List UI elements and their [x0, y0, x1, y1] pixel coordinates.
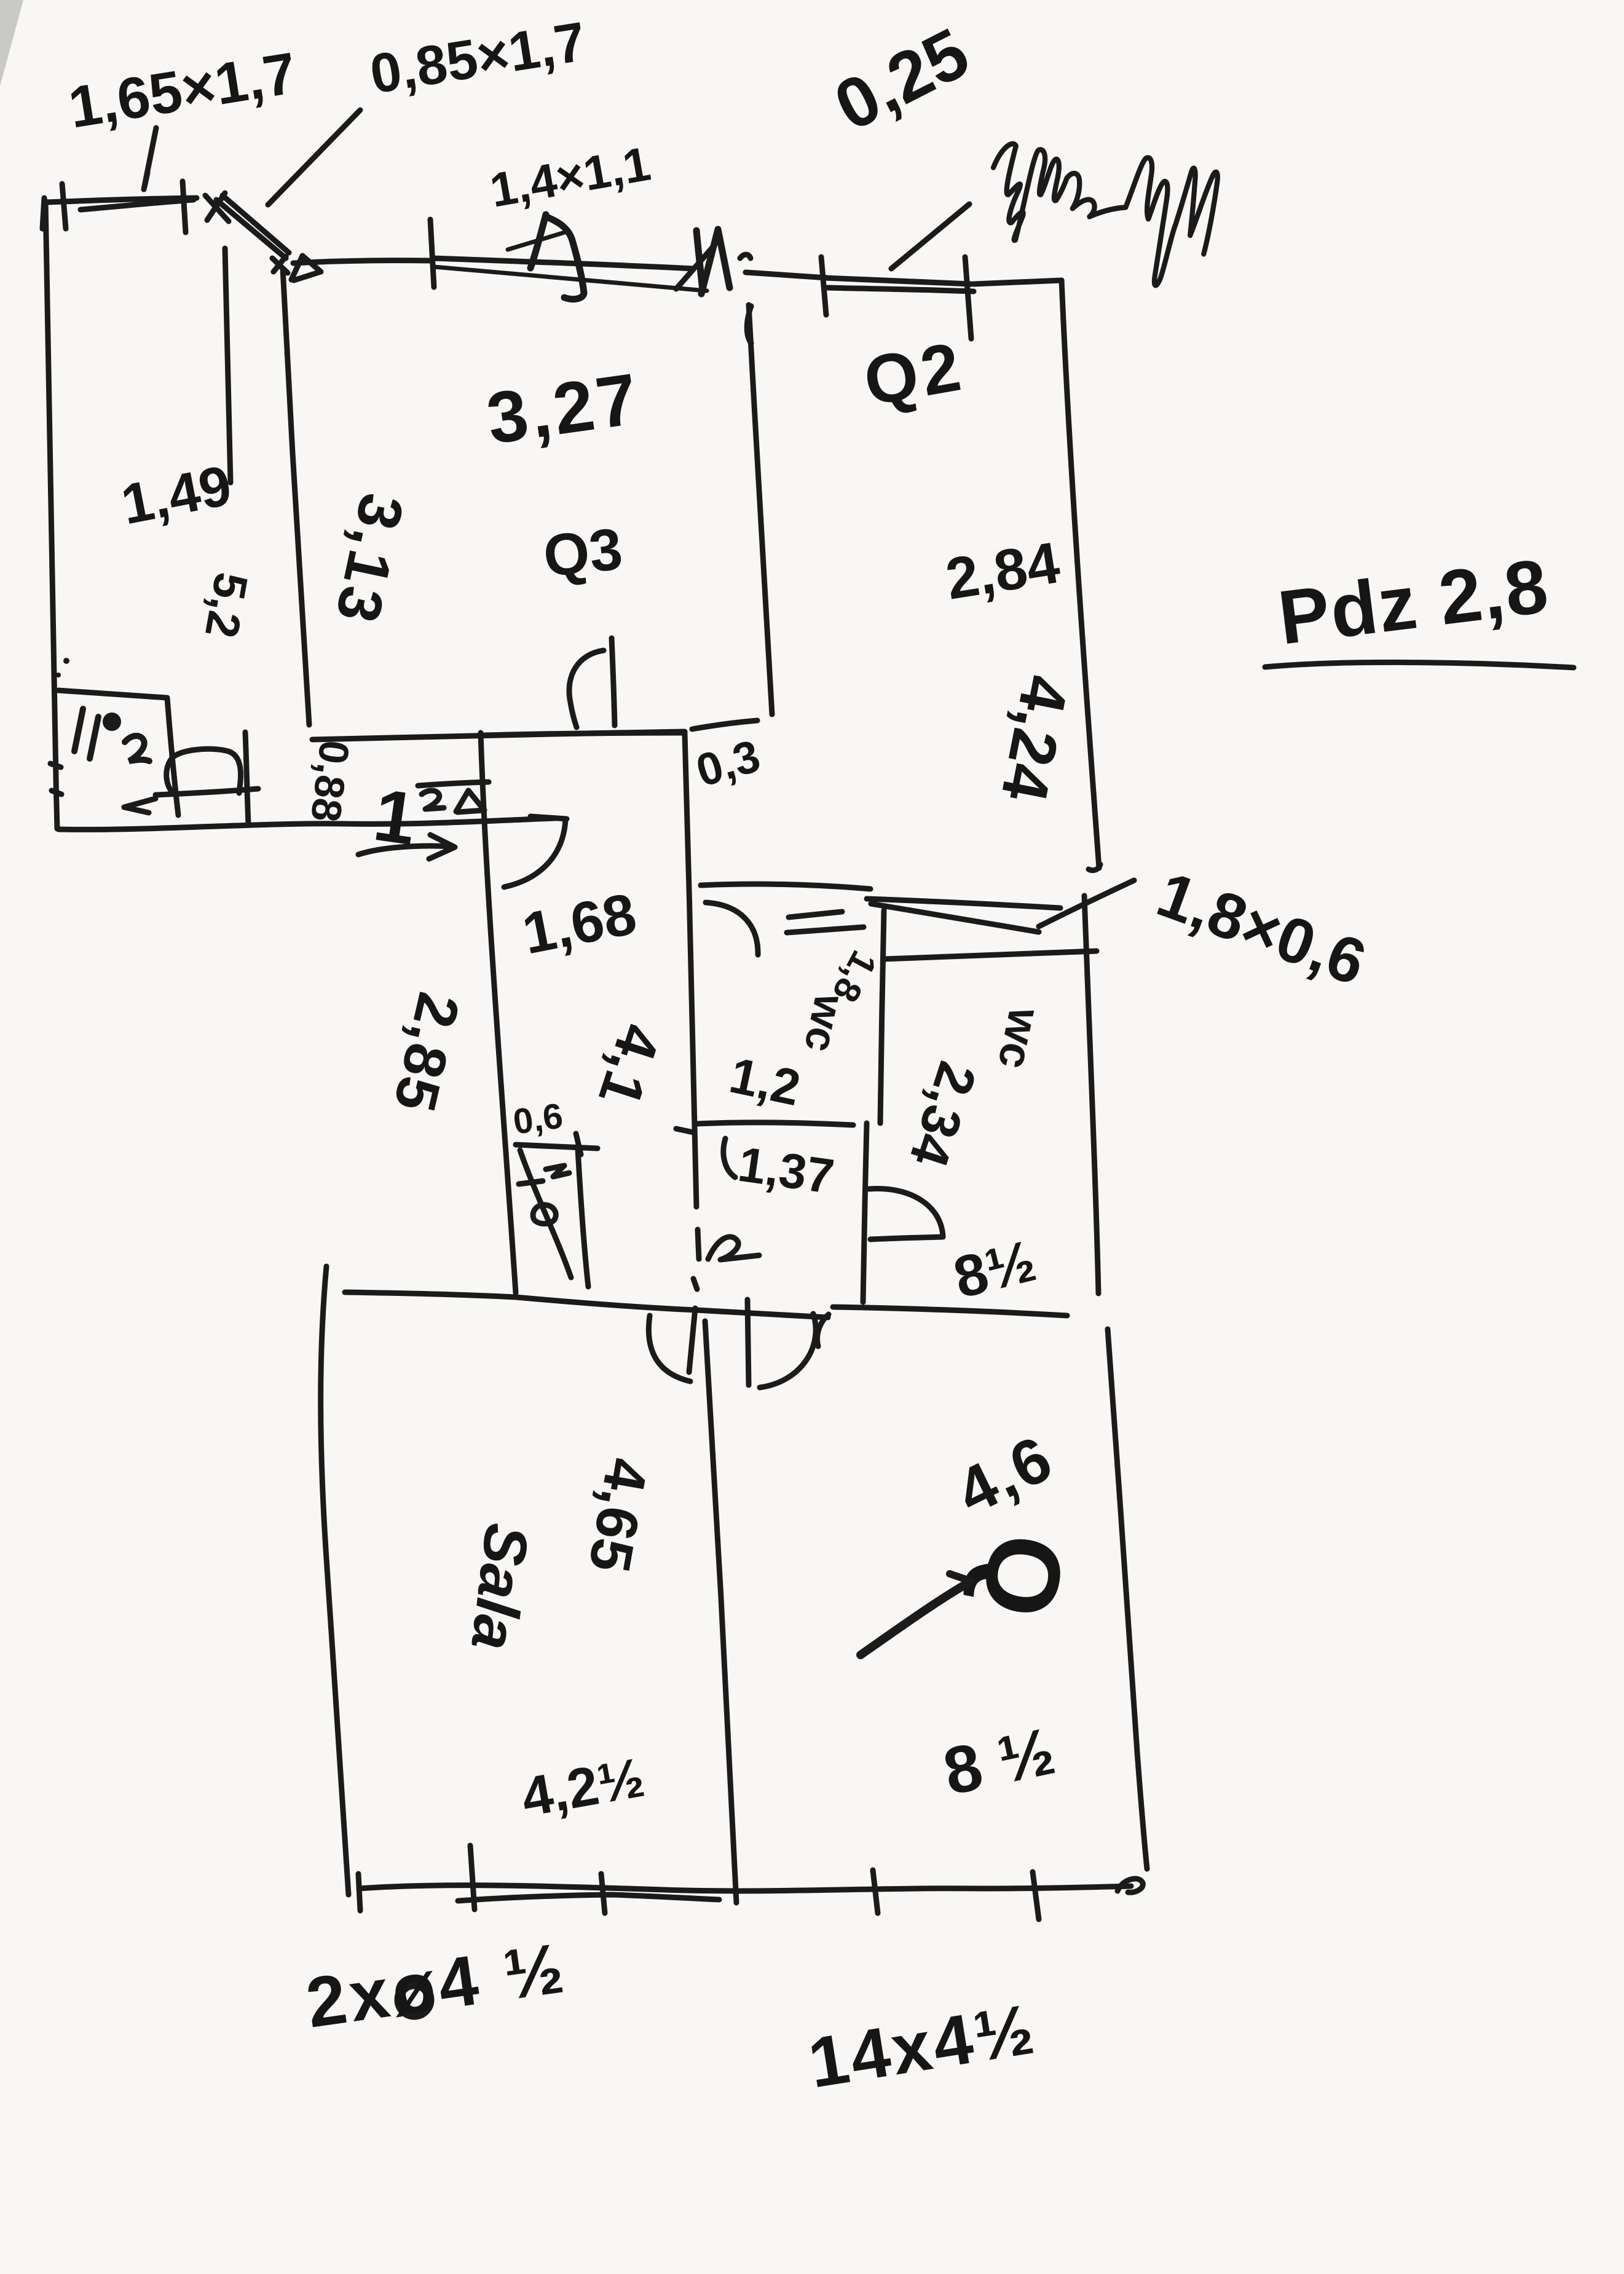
svg-text:0,85×1,7: 0,85×1,7: [366, 11, 589, 106]
svg-text:Pdz 2,8: Pdz 2,8: [1274, 543, 1553, 661]
svg-text:0,6: 0,6: [511, 1096, 566, 1142]
svg-text:Q2: Q2: [858, 328, 969, 420]
svg-text:3,13: 3,13: [322, 488, 417, 631]
svg-text:8 ½: 8 ½: [937, 1713, 1061, 1809]
svg-text:4,65: 4,65: [576, 1453, 660, 1577]
svg-text:2xø4 ½: 2xø4 ½: [302, 1929, 572, 2043]
svg-text:Q3: Q3: [540, 516, 626, 590]
svg-text:2,84: 2,84: [942, 530, 1064, 612]
svg-text:wc: wc: [988, 1003, 1051, 1074]
svg-text:3,27: 3,27: [482, 358, 645, 459]
svg-text:Sala: Sala: [458, 1520, 542, 1654]
svg-text:8½: 8½: [947, 1228, 1042, 1311]
svg-text:0,25: 0,25: [822, 14, 981, 146]
svg-text:1,49: 1,49: [116, 454, 236, 536]
svg-text:5,2: 5,2: [195, 569, 258, 642]
svg-text:0,3: 0,3: [691, 730, 766, 796]
svg-text:1,65×1,7: 1,65×1,7: [65, 41, 301, 141]
svg-text:1,8×0,6: 1,8×0,6: [1148, 859, 1374, 1000]
svg-text:0,88: 0,88: [302, 738, 358, 824]
svg-text:1,68: 1,68: [518, 881, 642, 966]
svg-text:Q: Q: [958, 1526, 1087, 1626]
svg-text:1,37: 1,37: [735, 1137, 838, 1204]
svg-text:2,85: 2,85: [381, 987, 472, 1118]
svg-text:4,24: 4,24: [987, 670, 1082, 807]
svg-text:1,4×1,1: 1,4×1,1: [486, 136, 655, 218]
svg-text:wc: wc: [795, 990, 854, 1057]
svg-text:4,2½: 4,2½: [517, 1747, 648, 1828]
svg-text:1,2: 1,2: [725, 1048, 805, 1117]
svg-text:14x4½: 14x4½: [803, 1989, 1041, 2103]
svg-text:4,1: 4,1: [586, 1017, 673, 1114]
svg-text:2,34: 2,34: [898, 1055, 988, 1174]
svg-text:4,6: 4,6: [946, 1421, 1065, 1528]
